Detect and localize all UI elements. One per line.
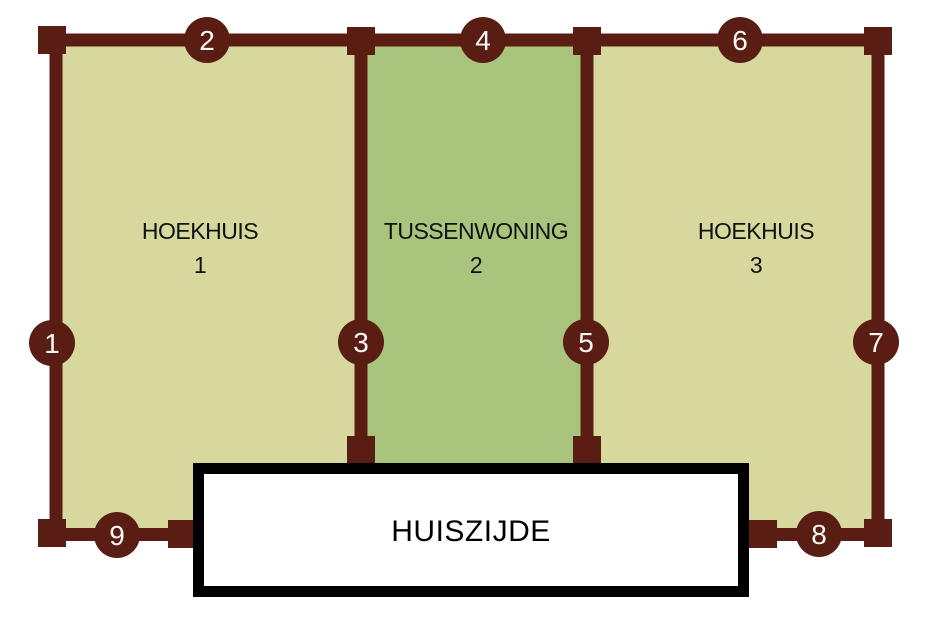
marker-2-number: 2 bbox=[199, 25, 215, 56]
marker-5: 5 bbox=[563, 319, 609, 365]
post-bottom-right bbox=[864, 519, 892, 547]
marker-1: 1 bbox=[29, 320, 75, 366]
boundary-line-left bbox=[50, 40, 63, 535]
label-hoekhuis-1: HOEKHUIS bbox=[142, 218, 258, 244]
post-top-line5 bbox=[573, 27, 601, 55]
post-top-line3 bbox=[347, 27, 375, 55]
post-bottom-right-inner bbox=[749, 520, 777, 548]
marker-2: 2 bbox=[184, 17, 230, 63]
plot-boundary-diagram: HOEKHUIS 1 TUSSENWONING 2 HOEKHUIS 3 HUI… bbox=[0, 0, 936, 632]
marker-1-number: 1 bbox=[44, 328, 60, 359]
post-top-left bbox=[38, 26, 66, 54]
label-hoekhuis-3-num: 3 bbox=[750, 252, 762, 278]
post-top-right bbox=[864, 27, 892, 55]
boundary-line-right bbox=[872, 40, 885, 534]
post-bottom-left bbox=[38, 519, 66, 547]
marker-9-number: 9 bbox=[109, 520, 125, 551]
post-bottom-left-inner bbox=[168, 520, 196, 548]
marker-7-number: 7 bbox=[868, 327, 884, 358]
marker-8-number: 8 bbox=[811, 519, 827, 550]
diagram-canvas: HOEKHUIS 1 TUSSENWONING 2 HOEKHUIS 3 HUI… bbox=[0, 0, 936, 632]
boundary-line-between-2-3 bbox=[581, 40, 594, 444]
post-bottom-line3 bbox=[347, 436, 375, 464]
marker-4: 4 bbox=[460, 17, 506, 63]
marker-9: 9 bbox=[94, 512, 140, 558]
plot-hoekhuis-1-fill bbox=[56, 40, 361, 534]
plot-hoekhuis-3-fill bbox=[587, 40, 878, 534]
house-side-label: HUISZIJDE bbox=[391, 515, 551, 548]
post-bottom-line5 bbox=[573, 436, 601, 464]
marker-6-number: 6 bbox=[732, 25, 748, 56]
boundary-line-between-1-2 bbox=[355, 40, 368, 444]
marker-3-number: 3 bbox=[353, 327, 369, 358]
marker-4-number: 4 bbox=[475, 25, 491, 56]
marker-7: 7 bbox=[853, 319, 899, 365]
label-tussenwoning-num: 2 bbox=[470, 252, 482, 278]
marker-8: 8 bbox=[796, 511, 842, 557]
marker-6: 6 bbox=[717, 17, 763, 63]
label-hoekhuis-1-num: 1 bbox=[194, 252, 206, 278]
marker-5-number: 5 bbox=[578, 327, 594, 358]
marker-3: 3 bbox=[338, 319, 384, 365]
label-hoekhuis-3: HOEKHUIS bbox=[698, 218, 814, 244]
label-tussenwoning: TUSSENWONING bbox=[384, 218, 568, 244]
